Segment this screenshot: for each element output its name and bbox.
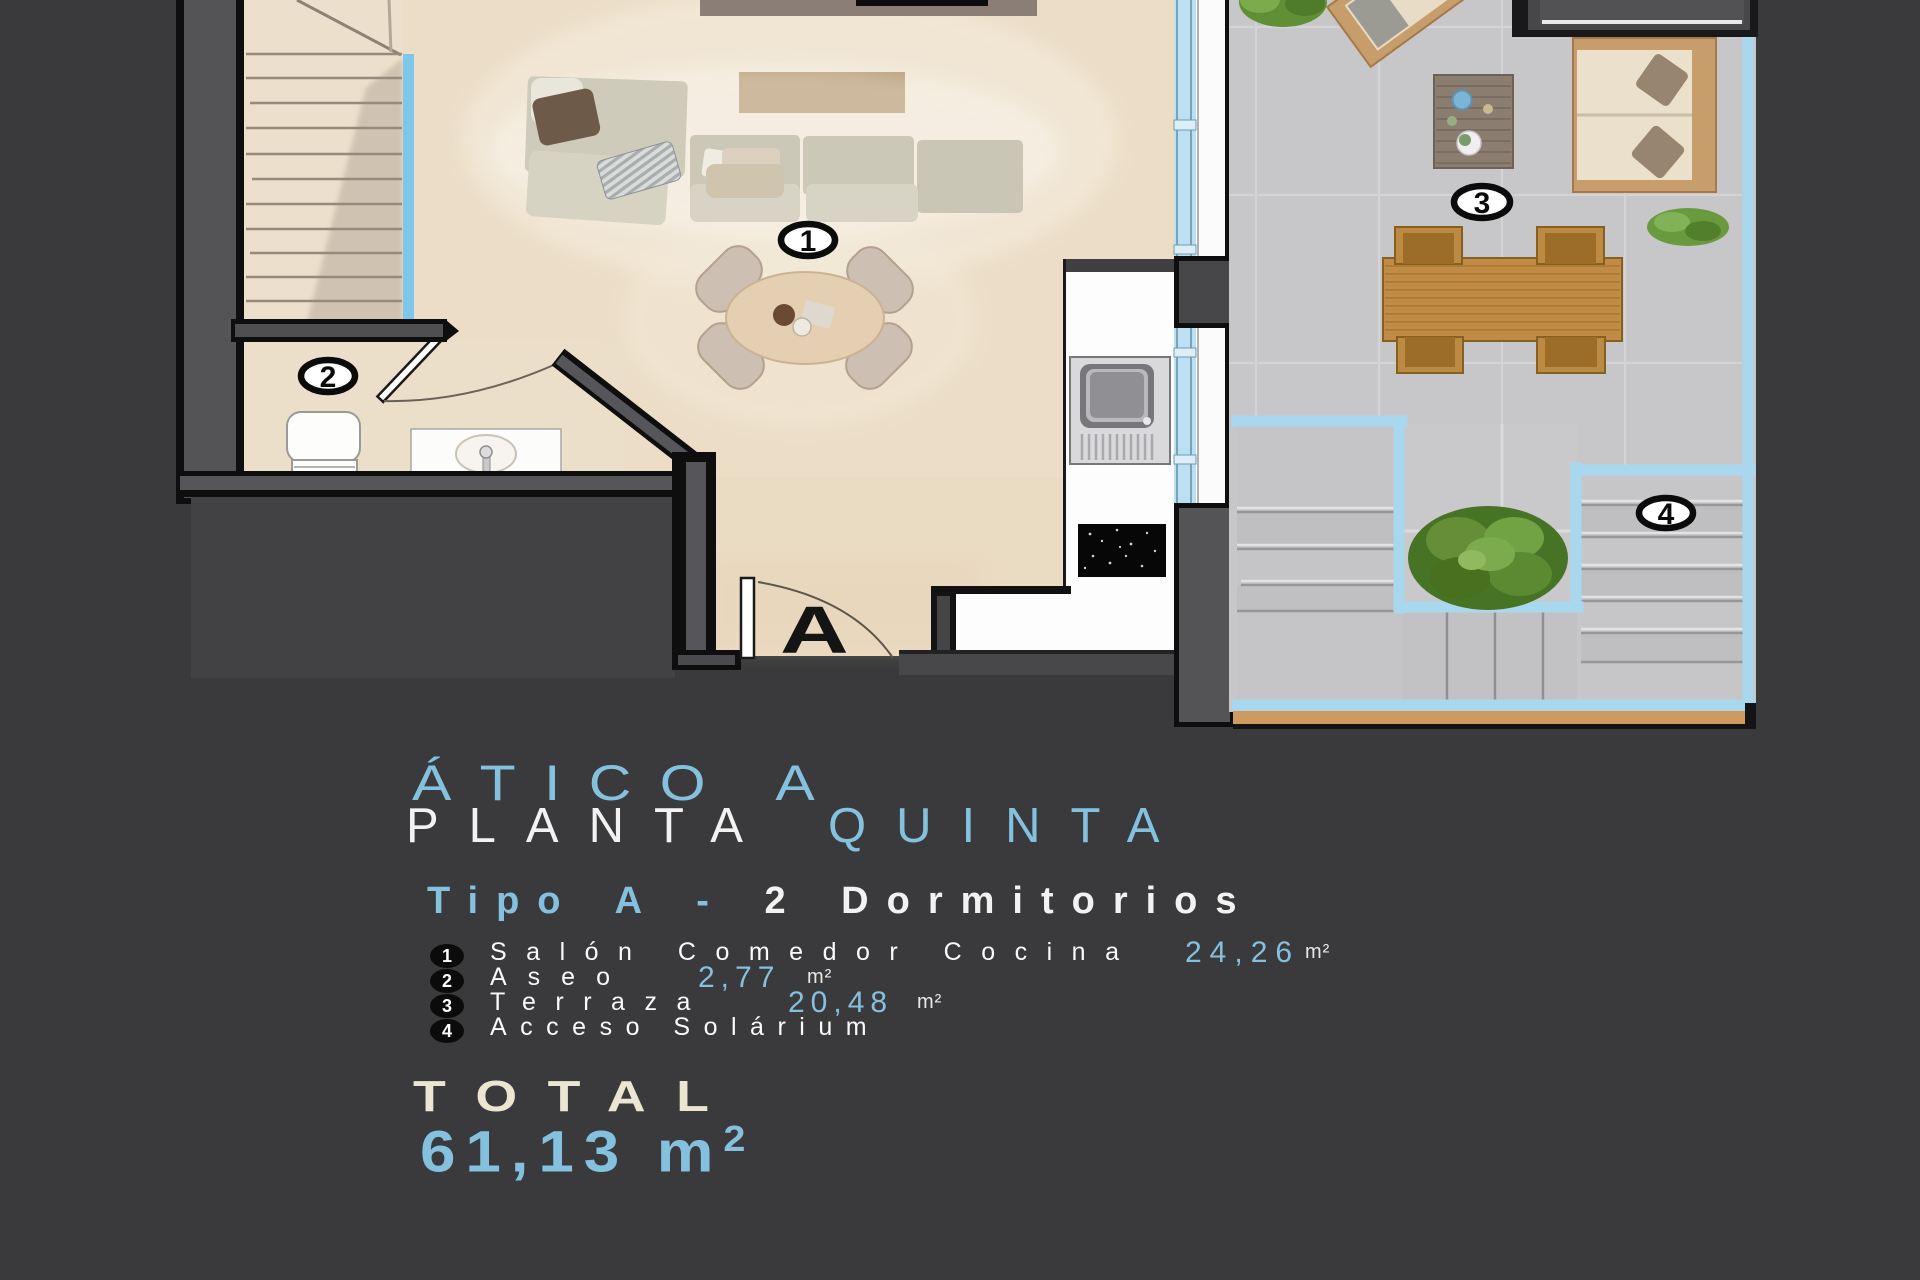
svg-text:3: 3 — [1474, 187, 1491, 220]
svg-text:A: A — [780, 594, 849, 668]
svg-text:4: 4 — [1658, 498, 1675, 531]
svg-text:1: 1 — [800, 225, 817, 258]
svg-text:2: 2 — [320, 361, 337, 394]
